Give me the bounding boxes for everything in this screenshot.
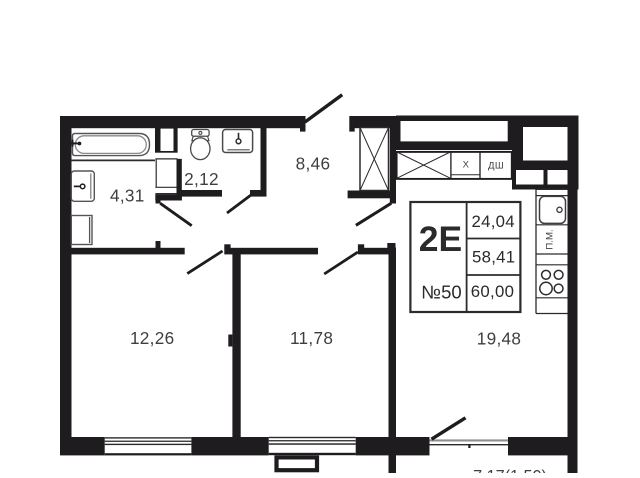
svg-text:24,04: 24,04 — [471, 212, 515, 231]
svg-text:X: X — [463, 160, 470, 171]
svg-text:12,26: 12,26 — [130, 328, 175, 348]
svg-text:ДШ: ДШ — [488, 161, 504, 172]
svg-text:№50: №50 — [421, 281, 461, 302]
svg-text:11,78: 11,78 — [290, 328, 333, 348]
svg-text:2Е: 2Е — [419, 219, 462, 259]
svg-text:4,31: 4,31 — [110, 185, 145, 205]
svg-text:60,00: 60,00 — [471, 282, 515, 301]
svg-text:2,12: 2,12 — [184, 169, 219, 189]
svg-text:П.М.: П.М. — [545, 229, 556, 249]
svg-text:8,46: 8,46 — [296, 153, 331, 173]
svg-text:7,17(1,50): 7,17(1,50) — [473, 468, 547, 474]
svg-text:19,48: 19,48 — [477, 328, 522, 348]
svg-text:58,41: 58,41 — [472, 247, 516, 266]
